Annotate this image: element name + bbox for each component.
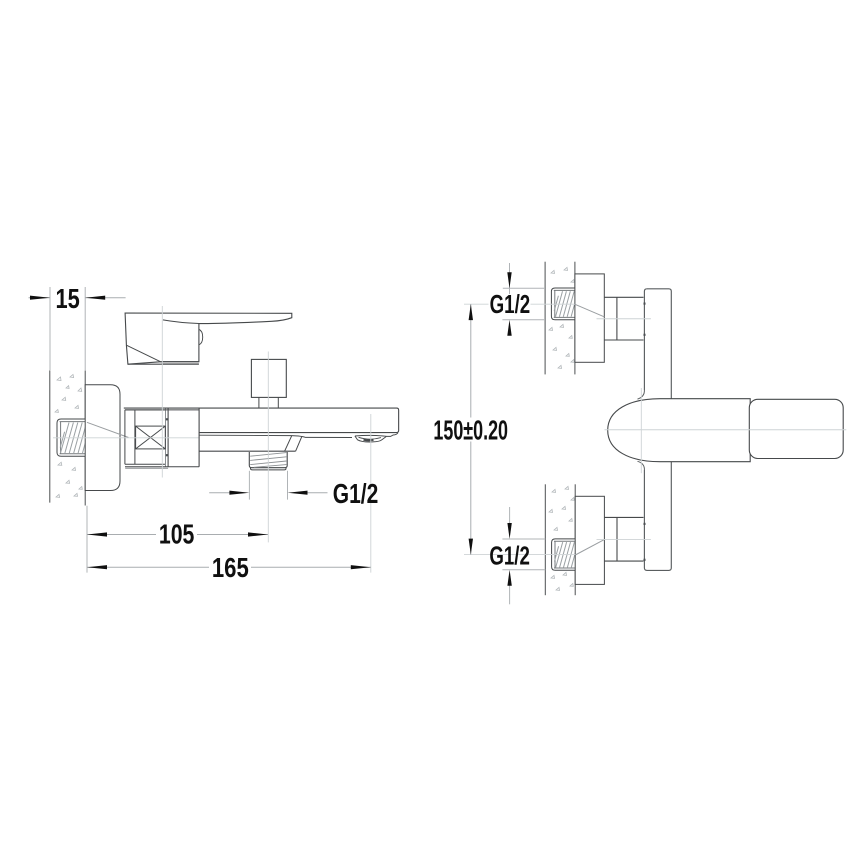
svg-text:15: 15 [55,284,79,315]
svg-text:G1/2: G1/2 [489,540,530,570]
svg-text:105: 105 [159,519,195,551]
svg-text:G1/2: G1/2 [490,289,531,319]
svg-text:150±0.20: 150±0.20 [433,415,508,446]
svg-text:165: 165 [212,552,249,583]
svg-text:G1/2: G1/2 [333,479,379,510]
